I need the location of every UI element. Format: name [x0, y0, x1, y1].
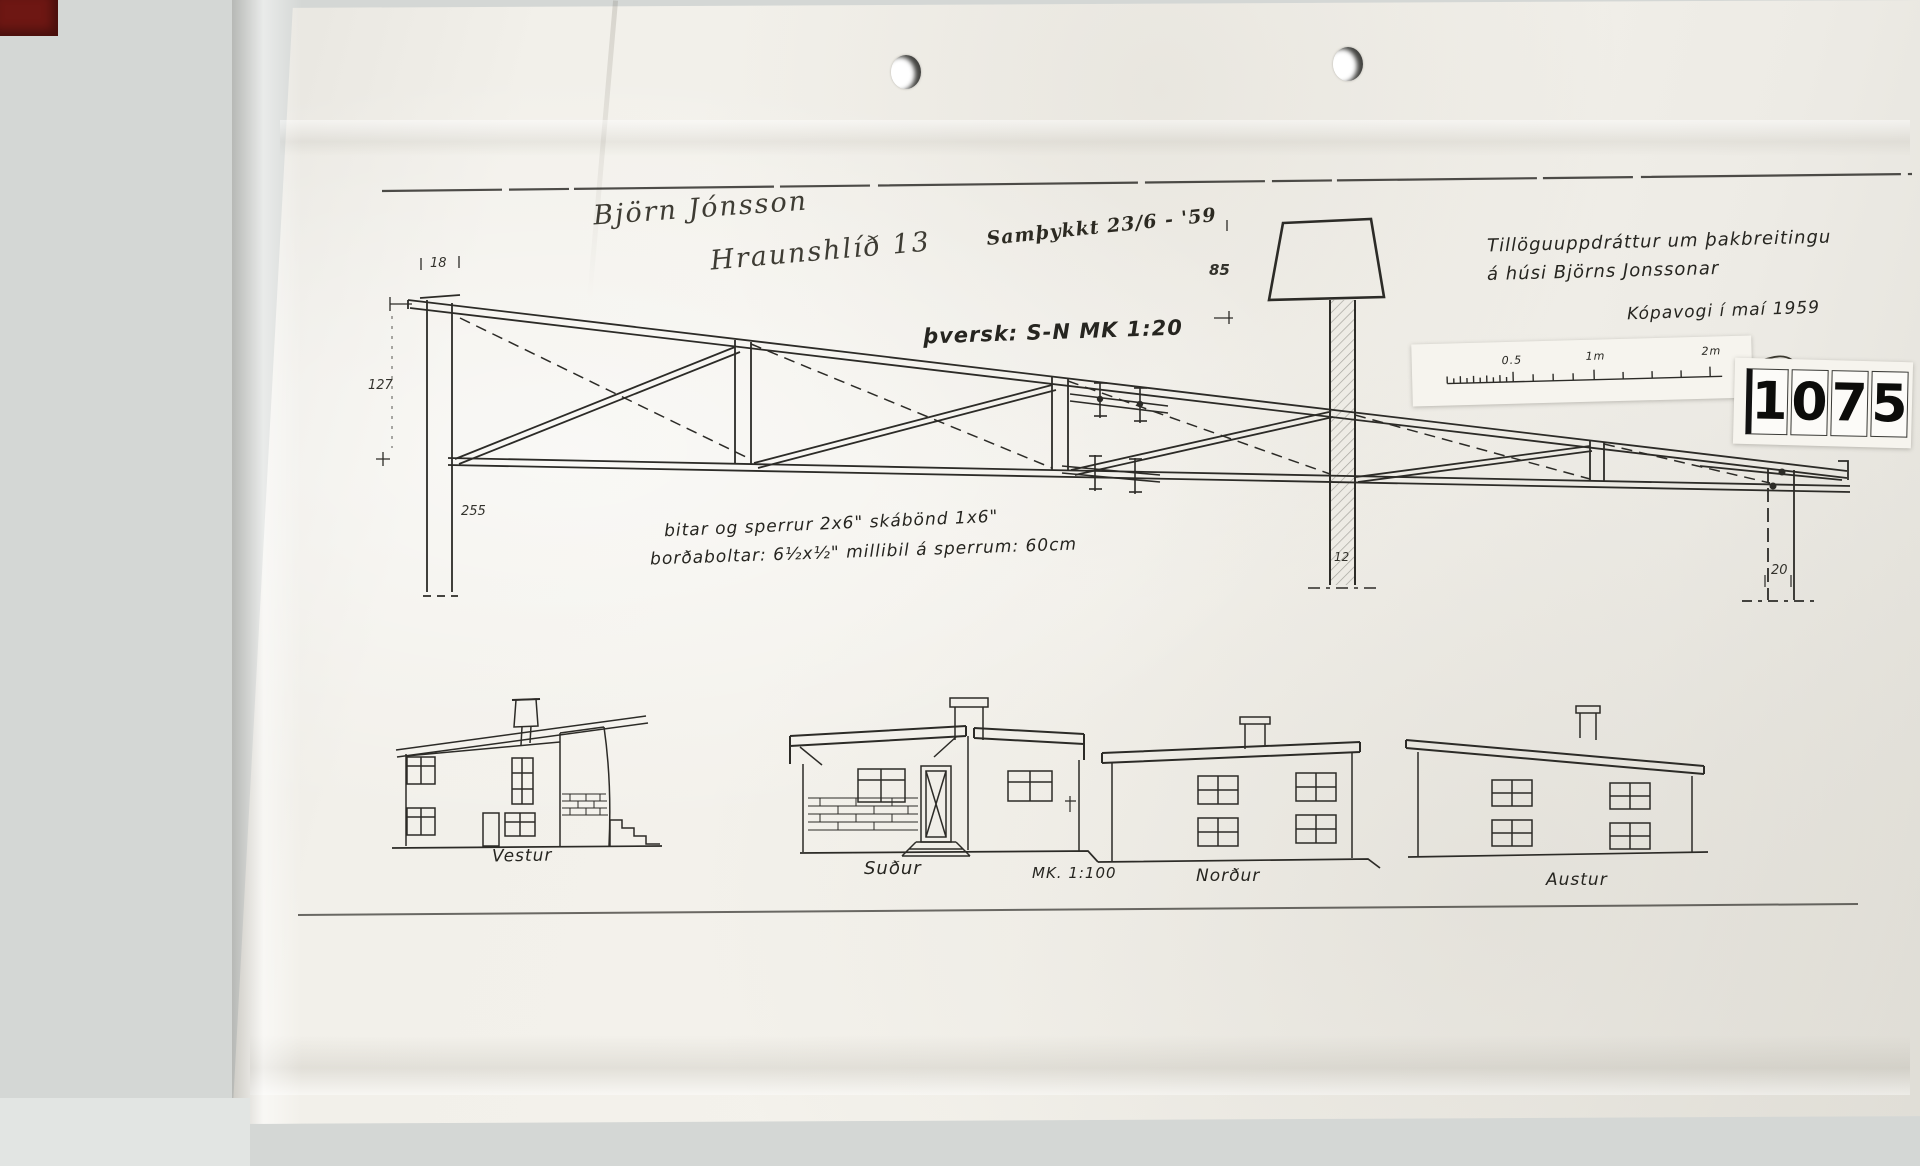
dimension-bottom-left: 255: [461, 504, 486, 519]
dimension-chimney-height: 85: [1209, 261, 1230, 279]
punch-hole: [1333, 47, 1363, 81]
archive-number-stamp: 1 0 7 5: [1745, 368, 1908, 437]
dimension-chimney-width: 12: [1334, 550, 1349, 564]
dimension-top-left: 18: [430, 256, 447, 271]
elevation-label-vestur: Vestur: [492, 845, 553, 866]
elevation-label-sudur: Suður: [864, 858, 922, 879]
punch-hole: [891, 55, 921, 89]
elevation-label-austur: Austur: [1546, 870, 1608, 890]
scale-tick-label: 1m: [1585, 349, 1605, 363]
stamp-digit: 1: [1745, 368, 1788, 435]
scale-bar: 0.5 1m 2m: [1411, 336, 1753, 407]
scanned-drawing-page: { "handwritten": { "name": "Björn Jónsso…: [0, 0, 1920, 1166]
scan-corner-mark: [0, 0, 58, 36]
paper-sheet: [232, 0, 1920, 1124]
scale-tick-label: 2m: [1701, 344, 1721, 358]
stamp-digit: 5: [1870, 371, 1908, 438]
dimension-left: 127: [368, 378, 393, 393]
stamp-digit: 7: [1830, 370, 1868, 437]
scanner-bottom-left-patch: [0, 1098, 250, 1166]
elevation-scale-label: MK. 1:100: [1032, 864, 1117, 882]
dimension-right-post: 20: [1771, 563, 1788, 578]
elevation-label-nordur: Norður: [1196, 866, 1260, 886]
stamp-digit: 0: [1790, 369, 1828, 436]
scale-tick-label: 0.5: [1502, 354, 1523, 368]
